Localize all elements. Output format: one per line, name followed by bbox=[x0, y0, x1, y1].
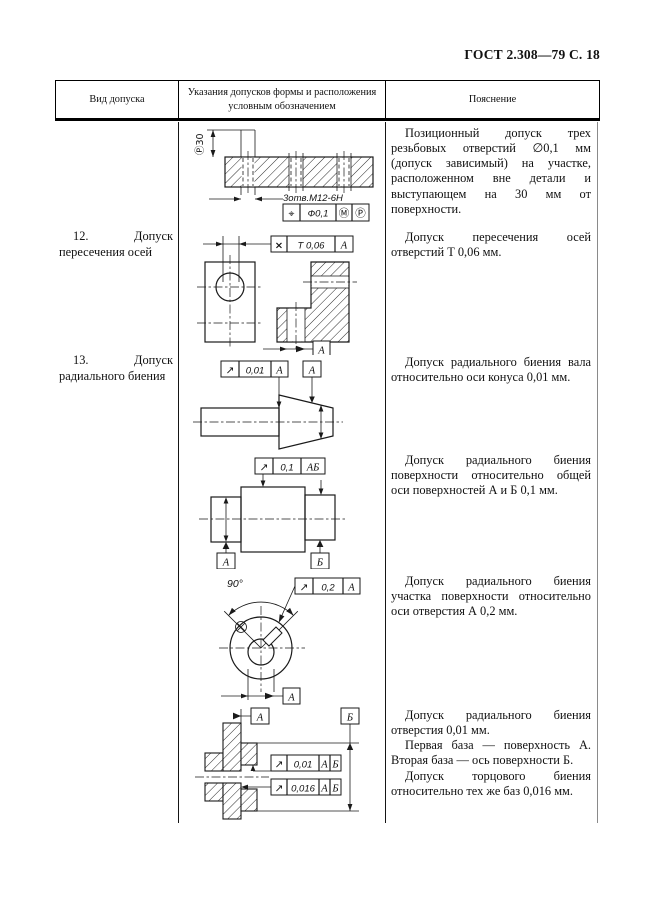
datum-ref-a: А bbox=[320, 760, 328, 771]
drawing-runout-cone: ↗ 0,01 А А bbox=[183, 355, 383, 452]
row-label-13: 13. Допуск радиального биения bbox=[59, 353, 173, 384]
column-header-explanation: Пояснение bbox=[386, 81, 599, 118]
datum-label: А bbox=[317, 346, 325, 356]
explanation-runout-cone: Допуск радиального биения вала относител… bbox=[391, 355, 591, 385]
thread-note: 3отв.М12-6Н bbox=[283, 193, 343, 204]
column-header-tolerance-type: Вид допуска bbox=[56, 81, 179, 118]
datum-ref-a: А bbox=[320, 784, 328, 795]
drawing-runout-sector: 90° ↗ 0,2 А А bbox=[183, 570, 383, 706]
drawing-runout-common-axis: ↗ 0,1 АБ А Б bbox=[183, 452, 383, 569]
runout-symbol-icon: ↗ bbox=[275, 783, 284, 795]
tolerance-value: Т 0,06 bbox=[298, 241, 326, 252]
tolerance-value: 0,01 bbox=[246, 366, 265, 377]
datum-ref-b: Б bbox=[331, 760, 338, 771]
sector-angle: 90° bbox=[227, 578, 243, 590]
datum-label-a: А bbox=[256, 713, 264, 724]
column-divider-1 bbox=[178, 122, 179, 823]
drawing-axes-intersection: × Т 0,06 А А bbox=[183, 230, 383, 355]
drawing-positional-tolerance: Ⓟ30 3отв.М12-6Н ⌖ Ф0,1 Ⓜ Ⓟ bbox=[183, 124, 383, 227]
intersection-symbol-icon: × bbox=[275, 241, 283, 252]
datum-reference: А bbox=[347, 583, 355, 594]
datum-reference: А bbox=[340, 241, 348, 252]
datum-label-b: Б bbox=[346, 713, 353, 724]
datum-reference: А bbox=[275, 366, 283, 377]
material-condition-icon: Ⓜ bbox=[339, 208, 350, 220]
datum-label: А bbox=[287, 693, 295, 704]
column-divider-2 bbox=[385, 122, 386, 823]
datum-label: А bbox=[308, 366, 316, 377]
tolerance-value-radial: 0,01 bbox=[294, 760, 313, 771]
projected-zone-dimension: Ⓟ30 bbox=[195, 133, 206, 155]
explanation-runout-common-axis: Допуск радиального биения поверхности от… bbox=[391, 453, 591, 498]
table-right-border bbox=[597, 122, 598, 823]
drawing-runout-hole: А Б ↗ 0,01 А Б ↗ 0,016 А Б bbox=[183, 707, 383, 825]
row-label-12: 12. Допуск пересечения осей bbox=[59, 229, 173, 260]
runout-symbol-icon: ↗ bbox=[260, 462, 269, 474]
datum-label-a: А bbox=[222, 558, 230, 569]
tolerance-value-face: 0,016 bbox=[291, 784, 315, 795]
explanation-runout-hole: Допуск радиального биения отверстия 0,01… bbox=[391, 708, 591, 799]
runout-symbol-icon: ↗ bbox=[275, 759, 284, 771]
datum-label-b: Б bbox=[316, 558, 323, 569]
column-header-designation: Указания допусков формы и расположения у… bbox=[179, 81, 386, 118]
tolerance-value: Ф0,1 bbox=[308, 209, 329, 220]
tolerance-value: 0,2 bbox=[321, 583, 335, 594]
datum-ref-b: Б bbox=[331, 784, 338, 795]
explanation-axes-intersection: Допуск пересечения осей отверстий Т 0,06… bbox=[391, 230, 591, 260]
projected-zone-icon: Ⓟ bbox=[355, 208, 366, 220]
explanation-positional: Позиционный допуск трех резьбовых отверс… bbox=[391, 126, 591, 217]
table-body: 12. Допуск пересечения осей 13. Допуск р… bbox=[55, 122, 598, 823]
table-header-row: Вид допуска Указания допусков формы и ра… bbox=[55, 80, 600, 121]
runout-symbol-icon: ↗ bbox=[300, 582, 309, 594]
position-symbol-icon: ⌖ bbox=[289, 208, 295, 220]
explanation-runout-sector: Допуск радиального биения участка поверх… bbox=[391, 574, 591, 619]
datum-reference: АБ bbox=[306, 463, 320, 474]
tolerance-value: 0,1 bbox=[280, 463, 293, 474]
runout-symbol-icon: ↗ bbox=[226, 365, 235, 377]
page-title: ГОСТ 2.308—79 С. 18 bbox=[464, 47, 600, 63]
